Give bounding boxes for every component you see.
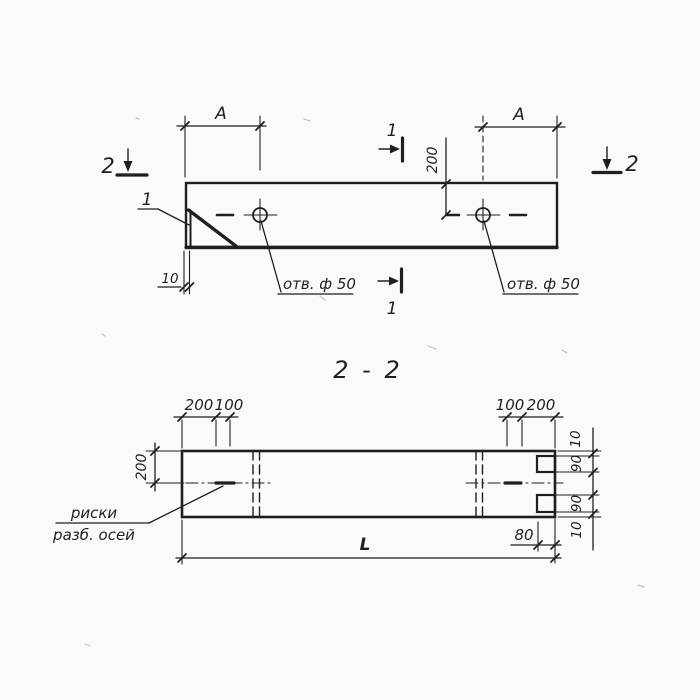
dim-10-label: 10 [161,271,178,287]
section-title: 2 - 2 [333,356,402,384]
section-1-bottom-label: 1 [387,299,398,319]
hole-left [244,199,277,230]
dim-200-hole-offset: 200 [425,138,450,219]
dim-a-left-label: A [214,104,227,124]
dim-200-tr-label: 200 [527,396,556,414]
technical-drawing: 1 A [0,0,700,700]
hole-label-left-leader [261,221,281,292]
section-2-left-label: 2 [101,154,114,178]
section-marker-2-left: 2 [101,149,147,178]
hole-label-left: отв. ф 50 [261,221,356,294]
section-view-2-2: 200 200 100 100 200 [52,396,601,564]
drawing-sheet: 1 A [0,0,700,700]
axes-note-line1: риски [70,504,118,522]
section-1-top-label: 1 [387,121,398,141]
dim-10-bottom-label: 10 [569,521,585,538]
top-view: 1 A [101,104,638,319]
notch-bottom [537,495,555,512]
hole-label-right-leader [484,221,504,292]
dim-10-plate: 10 [158,251,194,294]
dim-100-tl-label: 100 [215,396,244,414]
section-2-right-label: 2 [625,152,638,176]
dim-a-left: A [177,104,266,177]
dims-top-right: 100 200 [496,396,563,448]
notch-top [537,456,555,472]
dim-200-tl-label: 200 [185,396,214,414]
dim-90-top-label: 90 [569,455,585,472]
dim-80-notch: 80 [511,519,561,563]
section-marker-1-top: 1 [379,121,403,161]
section-marker-2-right: 2 [593,147,639,176]
dim-10-top-label: 10 [568,430,584,447]
dim-length-l: L [176,520,561,564]
section-marker-1-bottom: 1 [378,269,402,319]
dim-90-bottom-label: 90 [569,495,585,512]
axes-note-line2: разб. осей [52,526,135,544]
beam-outline-section [182,451,555,517]
hole-label-right: отв. ф 50 [484,221,580,294]
dim-80-label: 80 [514,526,533,544]
callout-leader [158,209,189,225]
hidden-edges [253,451,483,517]
dim-a-right: A [475,105,565,180]
hole-right [467,199,500,230]
hole-label-right-text: отв. ф 50 [507,275,580,293]
dims-top-left: 200 100 [174,396,243,448]
dim-length-label: L [360,535,371,555]
dim-200-width: 200 [134,443,184,491]
dims-right-side: 10 90 90 10 [556,428,601,550]
dim-100-tr-label: 100 [496,396,525,414]
dim-200-label: 200 [425,147,441,174]
dim-200-width-label: 200 [134,454,150,481]
dim-a-right-label: A [512,105,525,125]
hole-label-left-text: отв. ф 50 [283,275,356,293]
detail-callout-1: 1 [138,190,189,225]
axes-note: риски разб. осей [52,486,223,544]
detail-callout-label: 1 [142,190,153,210]
beam-outline-plan [186,183,557,248]
